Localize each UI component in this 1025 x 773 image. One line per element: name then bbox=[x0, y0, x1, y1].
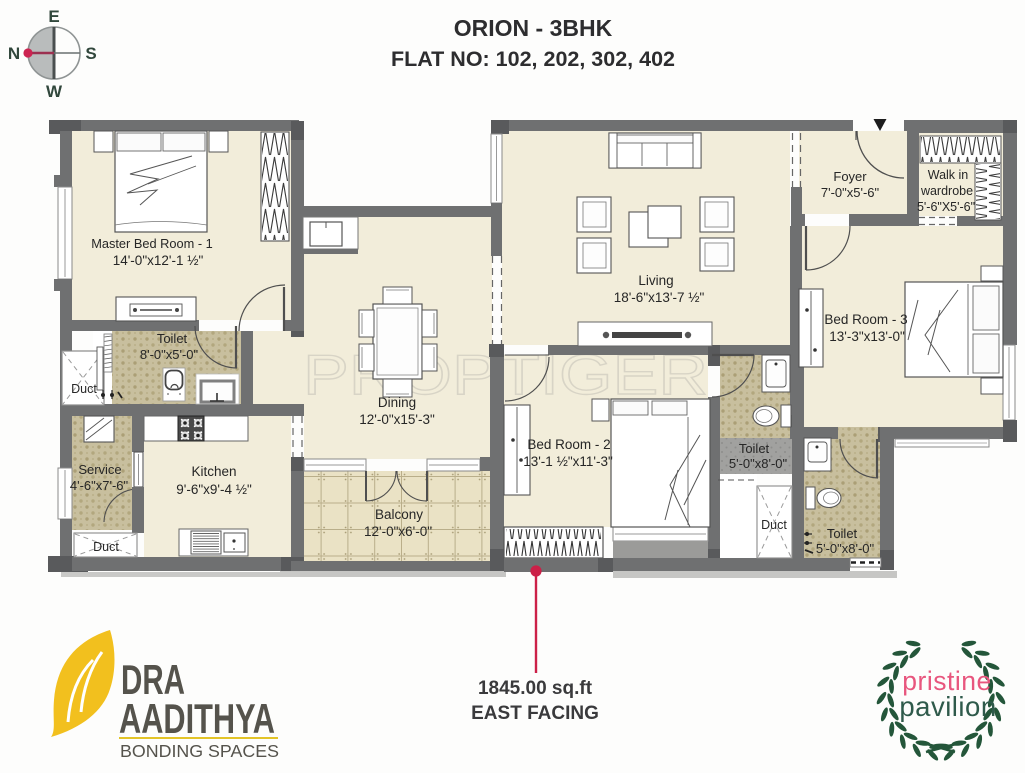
svg-text:8'-0"x5'-0": 8'-0"x5'-0" bbox=[140, 347, 199, 362]
svg-text:Walk in: Walk in bbox=[928, 168, 969, 182]
svg-text:N: N bbox=[8, 44, 20, 63]
svg-text:12'-0"x15'-3": 12'-0"x15'-3" bbox=[359, 412, 435, 427]
svg-text:Duct: Duct bbox=[71, 382, 97, 396]
svg-text:9'-6"x9'-4 ½": 9'-6"x9'-4 ½" bbox=[176, 482, 252, 497]
svg-text:AADITHYA: AADITHYA bbox=[119, 695, 275, 742]
svg-text:5'-0"x8'-0": 5'-0"x8'-0" bbox=[729, 456, 788, 471]
svg-text:Service: Service bbox=[78, 462, 121, 477]
svg-text:Bed Room - 3: Bed Room - 3 bbox=[824, 312, 907, 327]
svg-text:Kitchen: Kitchen bbox=[191, 464, 236, 479]
svg-text:Living: Living bbox=[638, 273, 673, 288]
svg-text:14'-0"x12'-1 ½": 14'-0"x12'-1 ½" bbox=[113, 253, 204, 268]
svg-text:Bed Room - 2: Bed Room - 2 bbox=[527, 437, 610, 452]
svg-text:Toilet: Toilet bbox=[827, 526, 858, 541]
svg-text:Master Bed Room - 1: Master Bed Room - 1 bbox=[91, 236, 213, 251]
svg-text:13'-1 ½"x11'-3": 13'-1 ½"x11'-3" bbox=[523, 454, 613, 469]
svg-text:1845.00 sq.ft: 1845.00 sq.ft bbox=[478, 678, 593, 699]
svg-text:Duct: Duct bbox=[761, 518, 787, 532]
svg-text:W: W bbox=[46, 82, 63, 101]
svg-text:Foyer: Foyer bbox=[833, 169, 867, 184]
svg-text:Balcony: Balcony bbox=[375, 507, 423, 522]
svg-text:Dining: Dining bbox=[378, 395, 416, 410]
svg-text:E: E bbox=[48, 7, 59, 26]
svg-text:7'-0"x5'-6": 7'-0"x5'-6" bbox=[821, 185, 880, 200]
svg-text:Toilet: Toilet bbox=[157, 331, 188, 346]
svg-text:S: S bbox=[85, 44, 96, 63]
svg-text:pavilion: pavilion bbox=[899, 691, 996, 722]
svg-text:ORION - 3BHK: ORION - 3BHK bbox=[454, 15, 613, 41]
svg-text:EAST FACING: EAST FACING bbox=[471, 703, 599, 724]
svg-text:5'-6"X5'-6": 5'-6"X5'-6" bbox=[917, 200, 975, 214]
svg-text:wardrobe: wardrobe bbox=[920, 184, 973, 198]
svg-text:5'-0"x8'-0": 5'-0"x8'-0" bbox=[816, 541, 875, 556]
svg-text:BONDING SPACES: BONDING SPACES bbox=[120, 741, 279, 761]
svg-text:18'-6"x13'-7 ½": 18'-6"x13'-7 ½" bbox=[614, 290, 705, 305]
svg-text:12'-0"x6'-0": 12'-0"x6'-0" bbox=[364, 524, 432, 539]
svg-text:FLAT NO: 102, 202, 302, 402: FLAT NO: 102, 202, 302, 402 bbox=[391, 47, 675, 71]
svg-text:13'-3"x13'-0": 13'-3"x13'-0" bbox=[829, 329, 905, 344]
svg-text:Toilet: Toilet bbox=[739, 441, 770, 456]
svg-text:4'-6"x7'-6": 4'-6"x7'-6" bbox=[70, 478, 129, 493]
svg-text:Duct: Duct bbox=[93, 540, 119, 554]
